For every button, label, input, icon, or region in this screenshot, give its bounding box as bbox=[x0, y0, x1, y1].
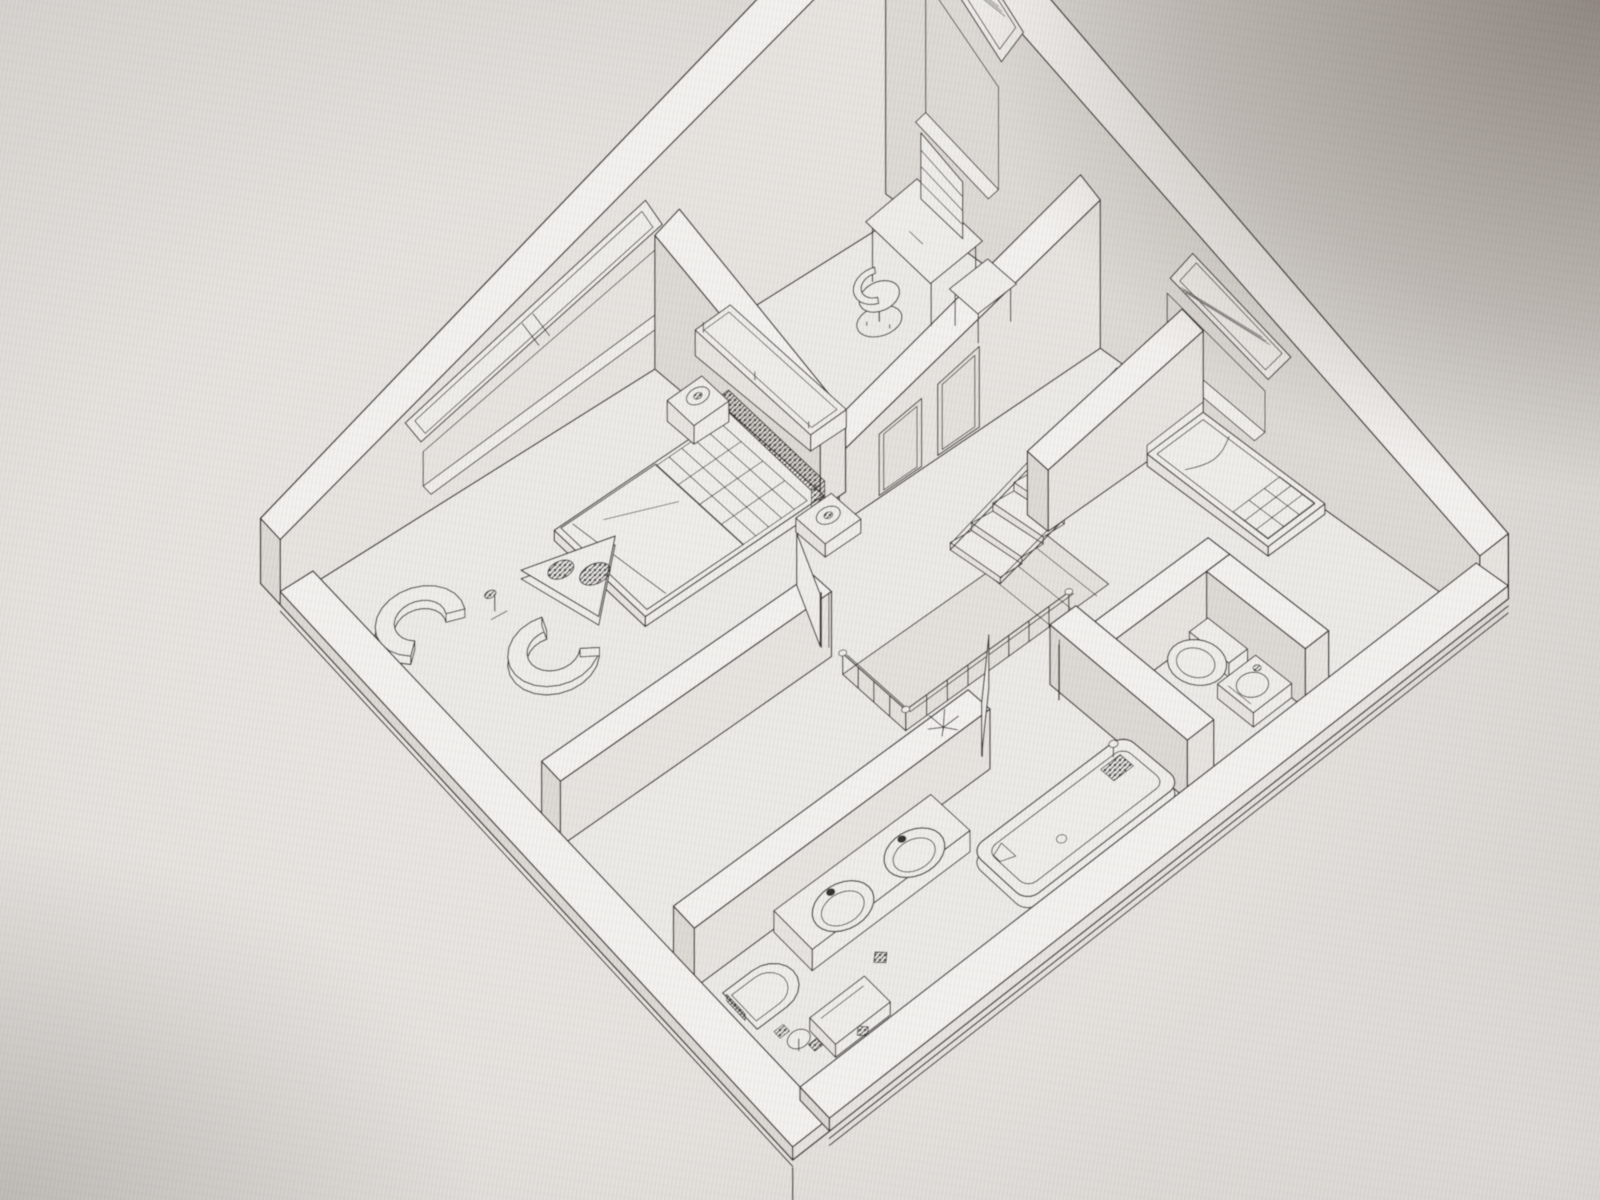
floor-drain-1 bbox=[874, 952, 887, 963]
floorplan-rendering bbox=[0, 0, 1600, 1200]
wireframe-root bbox=[261, 0, 1509, 1200]
photo-of-screen bbox=[0, 0, 1600, 1200]
floor-drain-2 bbox=[857, 1026, 868, 1035]
